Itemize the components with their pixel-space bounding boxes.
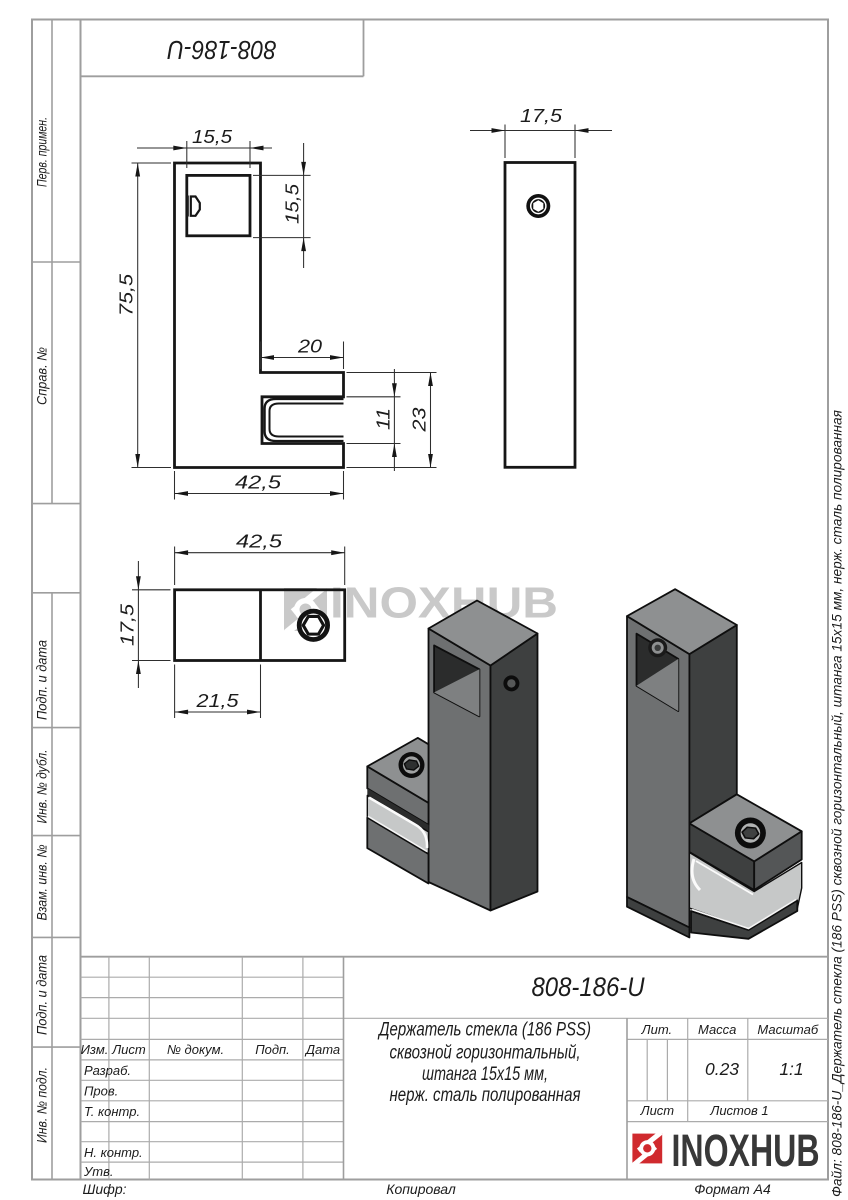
svg-text:Справ. №: Справ. № bbox=[35, 347, 50, 405]
svg-text:21,5: 21,5 bbox=[195, 690, 239, 711]
svg-text:Шифр:: Шифр: bbox=[83, 1181, 127, 1197]
svg-text:Масштаб: Масштаб bbox=[757, 1022, 818, 1037]
svg-text:Инв. № дубл.: Инв. № дубл. bbox=[35, 750, 50, 824]
svg-text:Изм.: Изм. bbox=[81, 1042, 109, 1057]
svg-text:1:1: 1:1 bbox=[779, 1059, 803, 1079]
svg-text:Перв. примен.: Перв. примен. bbox=[35, 117, 50, 187]
svg-text:Масса: Масса bbox=[698, 1022, 736, 1037]
svg-text:Т. контр.: Т. контр. bbox=[84, 1104, 140, 1119]
svg-text:808-186-U: 808-186-U bbox=[532, 972, 645, 1002]
svg-text:17,5: 17,5 bbox=[117, 603, 138, 646]
svg-text:Утв.: Утв. bbox=[83, 1164, 114, 1179]
svg-text:Дата: Дата bbox=[304, 1042, 340, 1057]
svg-text:15,5: 15,5 bbox=[192, 126, 233, 147]
svg-text:Инв. № подл.: Инв. № подл. bbox=[35, 1067, 50, 1143]
svg-text:17,5: 17,5 bbox=[520, 105, 563, 126]
svg-text:Пров.: Пров. bbox=[84, 1084, 118, 1099]
svg-text:0.23: 0.23 bbox=[705, 1059, 739, 1079]
svg-text:15,5: 15,5 bbox=[282, 183, 303, 224]
svg-text:20: 20 bbox=[297, 336, 323, 357]
svg-text:нерж. сталь полированная: нерж. сталь полированная bbox=[390, 1084, 581, 1106]
svg-text:штанга 15х15 мм,: штанга 15х15 мм, bbox=[422, 1063, 548, 1085]
svg-text:Файл: 808-186-U_Держатель стек: Файл: 808-186-U_Держатель стекла (186 PS… bbox=[830, 410, 845, 1197]
svg-text:808-186-U: 808-186-U bbox=[167, 35, 276, 65]
svg-text:42,5: 42,5 bbox=[236, 531, 283, 552]
svg-text:Подп.: Подп. bbox=[255, 1042, 290, 1057]
svg-text:Взам. инв. №: Взам. инв. № bbox=[35, 844, 50, 920]
svg-text:Листов 1: Листов 1 bbox=[709, 1103, 768, 1118]
svg-text:Лист: Лист bbox=[640, 1103, 675, 1118]
svg-text:11: 11 bbox=[373, 408, 394, 430]
svg-text:Разраб.: Разраб. bbox=[84, 1063, 131, 1078]
svg-text:Подп. и дата: Подп. и дата bbox=[35, 640, 50, 720]
svg-text:75,5: 75,5 bbox=[116, 273, 137, 316]
svg-text:Лист: Лист bbox=[111, 1042, 146, 1057]
svg-text:Подп. и дата: Подп. и дата bbox=[35, 955, 50, 1035]
svg-text:42,5: 42,5 bbox=[235, 472, 282, 493]
svg-text:№ докум.: № докум. bbox=[167, 1042, 224, 1057]
svg-text:Лит.: Лит. bbox=[641, 1022, 672, 1037]
svg-text:Формат А4: Формат А4 bbox=[694, 1181, 771, 1197]
svg-text:Копировал: Копировал bbox=[386, 1181, 456, 1197]
svg-text:сквозной горизонтальный,: сквозной горизонтальный, bbox=[390, 1042, 581, 1064]
svg-text:23: 23 bbox=[409, 407, 430, 433]
svg-text:Н. контр.: Н. контр. bbox=[84, 1145, 143, 1160]
svg-text:INOXHUB: INOXHUB bbox=[672, 1125, 820, 1176]
svg-text:Держатель стекла (186 PSS): Держатель стекла (186 PSS) bbox=[377, 1019, 591, 1041]
